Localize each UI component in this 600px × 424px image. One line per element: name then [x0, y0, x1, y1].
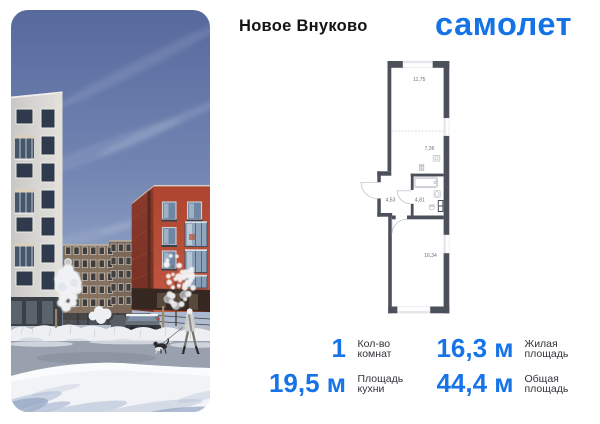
svg-text:4,53: 4,53: [386, 198, 396, 204]
svg-text:11,75: 11,75: [413, 77, 425, 83]
svg-text:16,34: 16,34: [424, 253, 437, 259]
svg-text:4,81: 4,81: [415, 198, 425, 204]
svg-text:7,36: 7,36: [425, 146, 435, 152]
